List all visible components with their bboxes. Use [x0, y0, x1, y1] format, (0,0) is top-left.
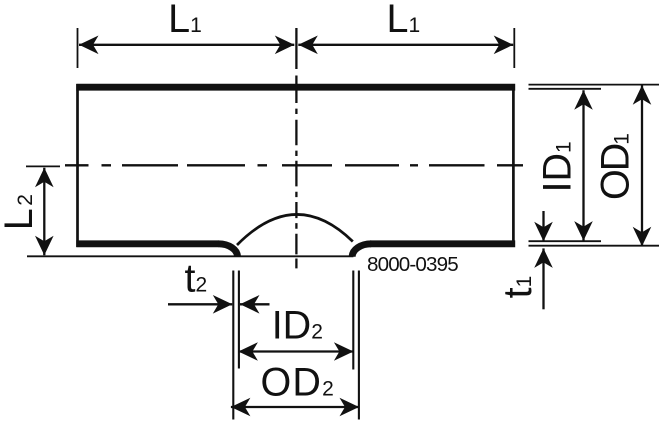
- svg-text:t2: t2: [185, 257, 208, 301]
- svg-text:L2: L2: [0, 192, 41, 231]
- svg-text:L1: L1: [387, 0, 421, 41]
- svg-text:OD1: OD1: [594, 134, 638, 200]
- svg-text:ID2: ID2: [272, 304, 323, 348]
- svg-text:L1: L1: [168, 0, 202, 41]
- svg-text:t1: t1: [496, 276, 540, 299]
- svg-text:8000-0395: 8000-0395: [367, 253, 458, 276]
- svg-text:ID1: ID1: [536, 141, 580, 192]
- svg-text:OD2: OD2: [261, 360, 336, 404]
